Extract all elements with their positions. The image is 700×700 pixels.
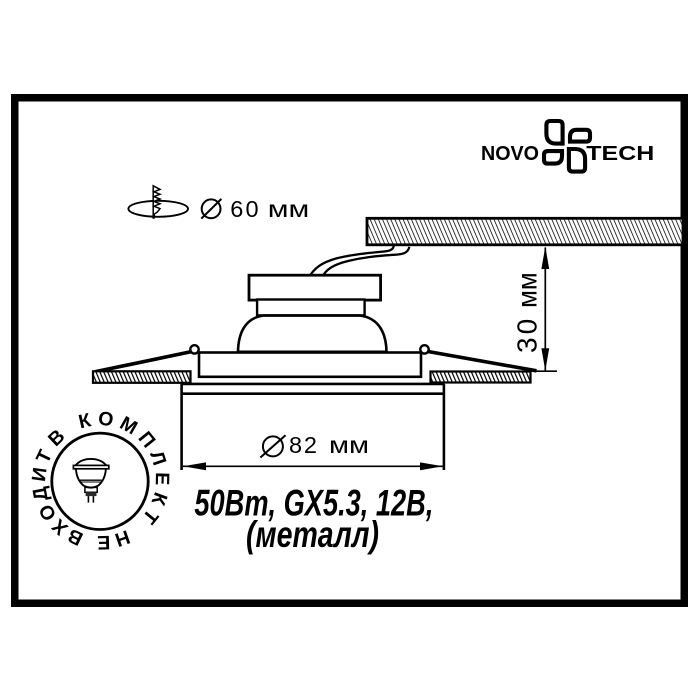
svg-text:60мм: 60мм <box>230 196 309 222</box>
svg-text:TECH: TECH <box>586 142 654 165</box>
svg-text:82мм: 82мм <box>289 432 369 458</box>
svg-text:NOVO: NOVO <box>481 142 539 165</box>
svg-text:(меmалл): (меmалл) <box>246 514 379 555</box>
